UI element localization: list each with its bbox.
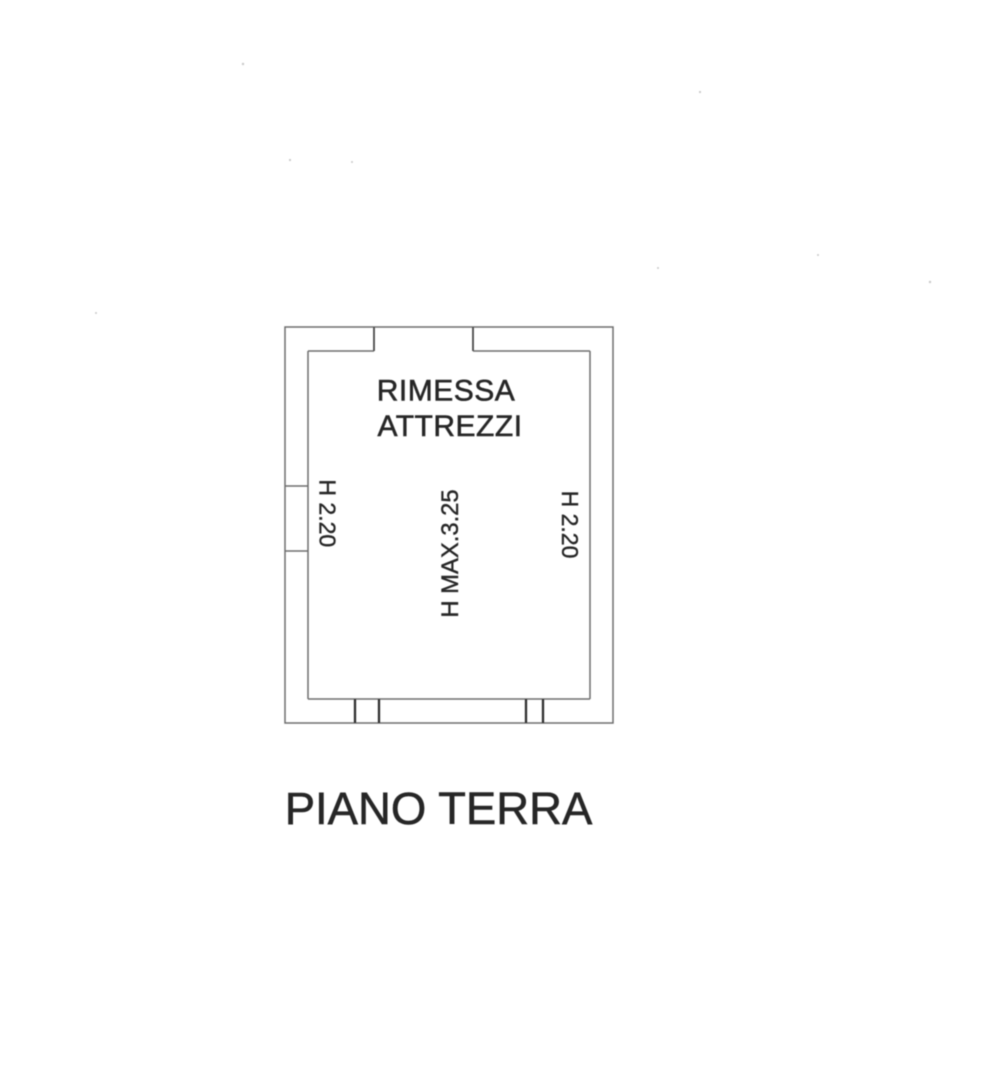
svg-text:RIMESSA: RIMESSA	[377, 375, 516, 408]
svg-text:PIANO TERRA: PIANO TERRA	[285, 783, 593, 834]
svg-text:H MAX.3.25: H MAX.3.25	[437, 489, 464, 617]
svg-text:H 2.20: H 2.20	[315, 479, 341, 547]
svg-text:ATTREZZI: ATTREZZI	[377, 410, 522, 443]
svg-text:H 2.20: H 2.20	[557, 491, 583, 559]
